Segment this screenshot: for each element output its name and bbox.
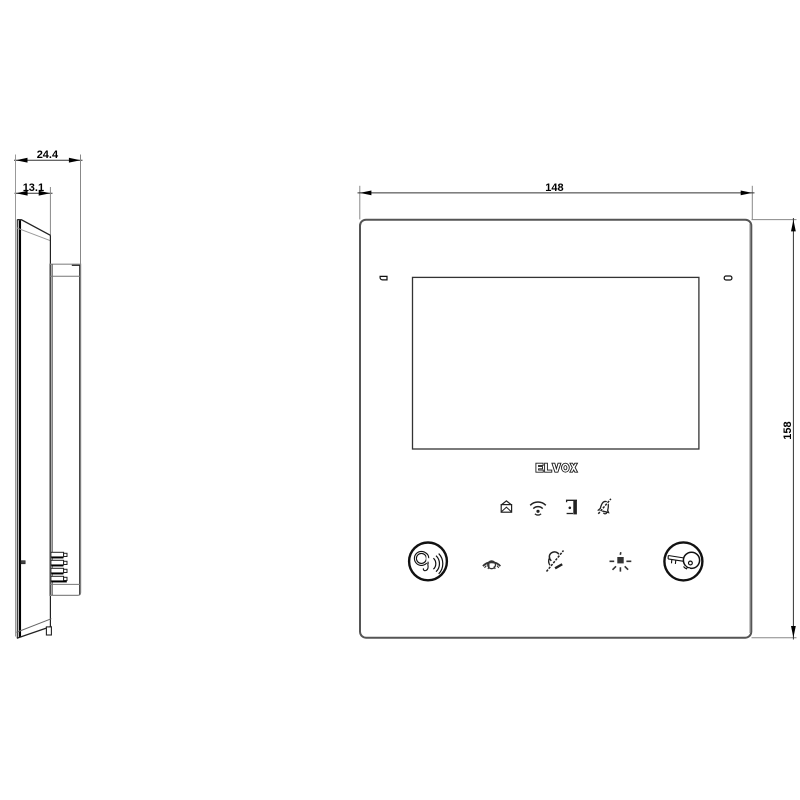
svg-text:13.1: 13.1 (23, 182, 44, 194)
svg-text:158: 158 (782, 421, 794, 439)
svg-text:24.4: 24.4 (37, 149, 59, 161)
svg-text:148: 148 (545, 182, 563, 194)
